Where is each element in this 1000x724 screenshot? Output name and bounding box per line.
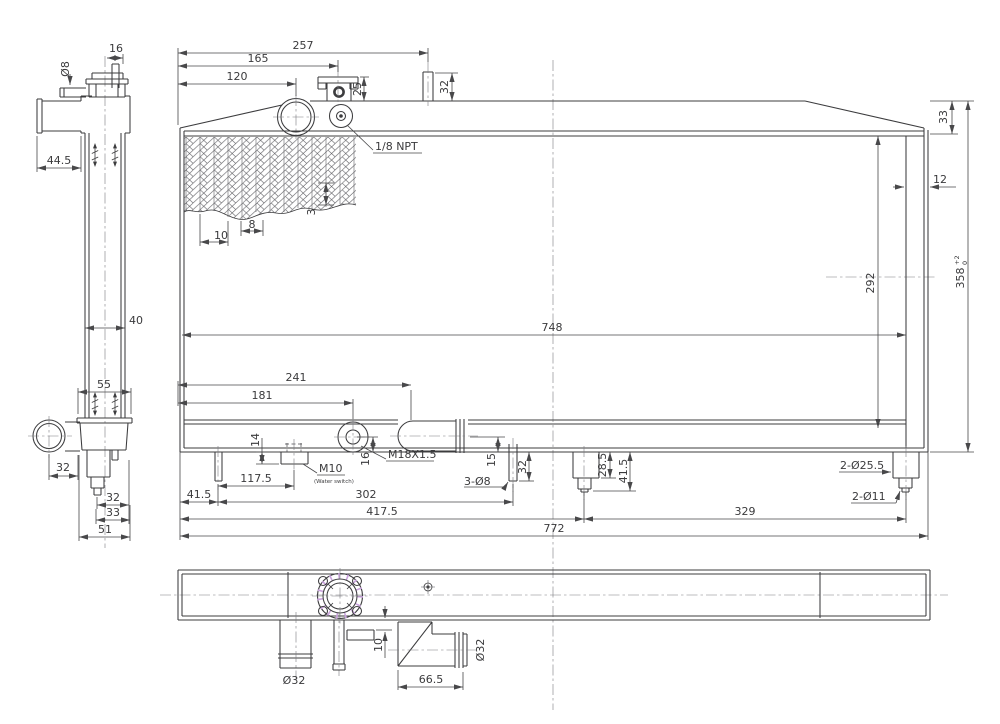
dim-side-51: 51 xyxy=(98,523,112,536)
dim-66-5: 66.5 xyxy=(419,673,444,686)
dim-boss-14: 14 xyxy=(249,433,262,447)
dim-side-12: 12 xyxy=(933,173,947,186)
dim-top-10: 10 xyxy=(372,638,385,652)
radiator-drawing-page: 16 Ø8 44.5 40 55 32 32 33 51 xyxy=(0,0,1000,724)
dim-117-5: 117.5 xyxy=(240,472,272,485)
dim-748: 748 xyxy=(542,321,563,334)
dim-417-5: 417.5 xyxy=(366,505,398,518)
label-m10-note: (Water switch) xyxy=(314,479,354,485)
dim-core-292: 292 xyxy=(864,273,877,294)
front-view: 1/8 NPT 3 8 10 257 165 120 25 32 33 xyxy=(178,39,974,710)
dim-15: 15 xyxy=(485,453,498,467)
dim-fin-3: 3 xyxy=(305,209,318,216)
dim-fin-10: 10 xyxy=(214,229,228,242)
side-view: 16 Ø8 44.5 40 55 32 32 33 51 xyxy=(28,42,143,548)
dim-pipe-32: 32 xyxy=(438,80,451,94)
label-dia32-right: Ø32 xyxy=(474,639,487,662)
dim-side-32-step: 32 xyxy=(106,491,120,504)
label-2-dia25-5: 2-Ø25.5 xyxy=(840,459,884,472)
dim-side-55: 55 xyxy=(97,378,111,391)
dim-165: 165 xyxy=(248,52,269,65)
dim-fin-8: 8 xyxy=(249,218,256,231)
top-view: Ø32 10 Ø32 66.5 xyxy=(160,568,948,690)
dim-side-33: 33 xyxy=(106,506,120,519)
dim-41-5b: 41.5 xyxy=(617,459,630,484)
dim-358-tol-up: +2 xyxy=(953,255,961,265)
dim-120: 120 xyxy=(227,70,248,83)
label-npt: 1/8 NPT xyxy=(375,140,418,153)
dim-pin-32: 32 xyxy=(516,460,529,474)
dim-side-32-hose: 32 xyxy=(56,461,70,474)
dim-302: 302 xyxy=(356,488,377,501)
label-m18: M18X1.5 xyxy=(388,448,437,461)
dim-side-40: 40 xyxy=(129,314,143,327)
label-m10: M10 xyxy=(319,462,343,475)
dim-181: 181 xyxy=(252,389,273,402)
dim-total-358: 358 xyxy=(954,268,967,289)
label-2-dia11: 2-Ø11 xyxy=(852,490,886,503)
dim-358-tol-dn: 0 xyxy=(961,261,969,265)
radiator-drawing: 16 Ø8 44.5 40 55 32 32 33 51 xyxy=(0,0,1000,724)
label-3-dia8: 3-Ø8 xyxy=(464,475,491,488)
dim-28-5: 28.5 xyxy=(596,453,609,478)
dim-drain-16: 16 xyxy=(359,452,372,466)
dim-cap-25: 25 xyxy=(351,82,364,96)
dim-257: 257 xyxy=(293,39,314,52)
dim-329: 329 xyxy=(735,505,756,518)
dim-side-dia8: Ø8 xyxy=(59,61,72,77)
label-dia32-left: Ø32 xyxy=(283,674,306,687)
dim-side-44-5: 44.5 xyxy=(47,154,72,167)
dim-41-5: 41.5 xyxy=(187,488,212,501)
dim-772: 772 xyxy=(544,522,565,535)
dim-241: 241 xyxy=(286,371,307,384)
dim-side-16: 16 xyxy=(109,42,123,55)
dim-tank-33: 33 xyxy=(937,110,950,124)
